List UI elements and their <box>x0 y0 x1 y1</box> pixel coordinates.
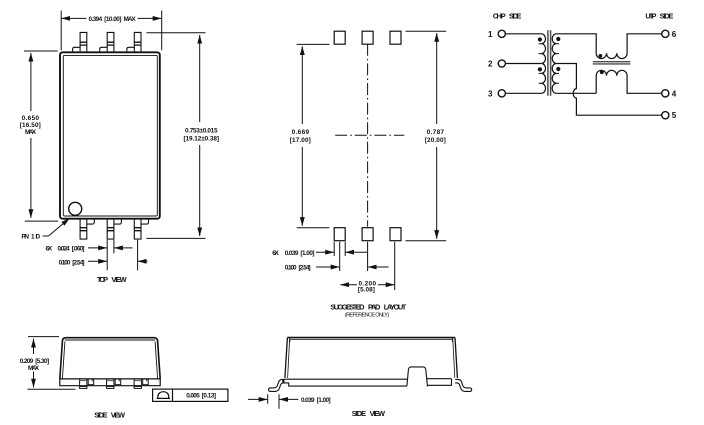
svg-text:[1.00]: [1.00] <box>300 250 314 257</box>
svg-text:0.787: 0.787 <box>427 129 445 136</box>
svg-text:TOP: TOP <box>97 275 108 284</box>
svg-text:SIDE: SIDE <box>660 11 674 20</box>
svg-text:VIEW: VIEW <box>111 275 126 284</box>
svg-text:6X: 6X <box>272 250 279 257</box>
svg-text:MAX: MAX <box>25 129 37 136</box>
svg-text:SIDE: SIDE <box>509 11 522 20</box>
svg-text:2: 2 <box>488 60 493 69</box>
svg-text:[17.00]: [17.00] <box>290 137 311 144</box>
svg-text:[5.30]: [5.30] <box>35 358 49 365</box>
svg-text:SIDE: SIDE <box>352 409 366 418</box>
svg-text:0.024: 0.024 <box>58 246 71 253</box>
svg-text:UTP: UTP <box>645 11 656 20</box>
svg-text:[16.50]: [16.50] <box>20 122 41 129</box>
svg-text:0.753±0.015: 0.753±0.015 <box>185 127 218 134</box>
svg-text:(REFERENCE ONLY): (REFERENCE ONLY) <box>345 313 389 319</box>
svg-text:LAYOUT: LAYOUT <box>384 303 407 312</box>
svg-text:VIEW: VIEW <box>111 411 125 420</box>
svg-text:[1.00]: [1.00] <box>317 397 331 404</box>
svg-text:6X: 6X <box>46 246 53 253</box>
svg-text:PIN: PIN <box>21 234 29 241</box>
svg-text:MAX: MAX <box>28 365 40 372</box>
svg-text:0.394: 0.394 <box>89 16 103 23</box>
svg-text:SUGGESTED: SUGGESTED <box>330 303 365 312</box>
svg-text:CHIP: CHIP <box>493 11 506 20</box>
svg-text:1: 1 <box>31 234 35 241</box>
svg-text:0.100: 0.100 <box>285 265 297 272</box>
svg-text:4: 4 <box>672 89 677 98</box>
svg-text:MAX: MAX <box>124 16 137 23</box>
svg-text:[2.54]: [2.54] <box>299 265 311 272</box>
svg-text:6: 6 <box>672 30 677 39</box>
svg-text:[5.08]: [5.08] <box>358 286 375 293</box>
svg-text:[20.00]: [20.00] <box>425 137 446 144</box>
svg-text:[0.13]: [0.13] <box>202 393 216 400</box>
svg-text:0.209: 0.209 <box>20 358 34 365</box>
svg-text:3: 3 <box>488 89 493 98</box>
svg-text:0.650: 0.650 <box>22 115 40 122</box>
svg-text:0.669: 0.669 <box>292 129 310 136</box>
svg-text:ID: ID <box>36 234 41 241</box>
svg-text:0.005: 0.005 <box>186 393 200 400</box>
svg-text:PAD: PAD <box>368 303 381 312</box>
svg-text:0.039: 0.039 <box>285 250 299 257</box>
svg-text:[10.00]: [10.00] <box>104 16 121 23</box>
svg-text:[.060]: [.060] <box>72 246 85 253</box>
svg-text:VIEW: VIEW <box>370 409 385 418</box>
svg-text:0.039: 0.039 <box>301 397 315 404</box>
svg-text:5: 5 <box>672 111 677 120</box>
svg-text:[19.12±0.38]: [19.12±0.38] <box>184 135 220 142</box>
svg-text:[2.54]: [2.54] <box>72 259 84 266</box>
svg-text:1: 1 <box>488 30 493 39</box>
svg-text:0.100: 0.100 <box>59 259 71 266</box>
svg-text:SIDE: SIDE <box>94 411 107 420</box>
